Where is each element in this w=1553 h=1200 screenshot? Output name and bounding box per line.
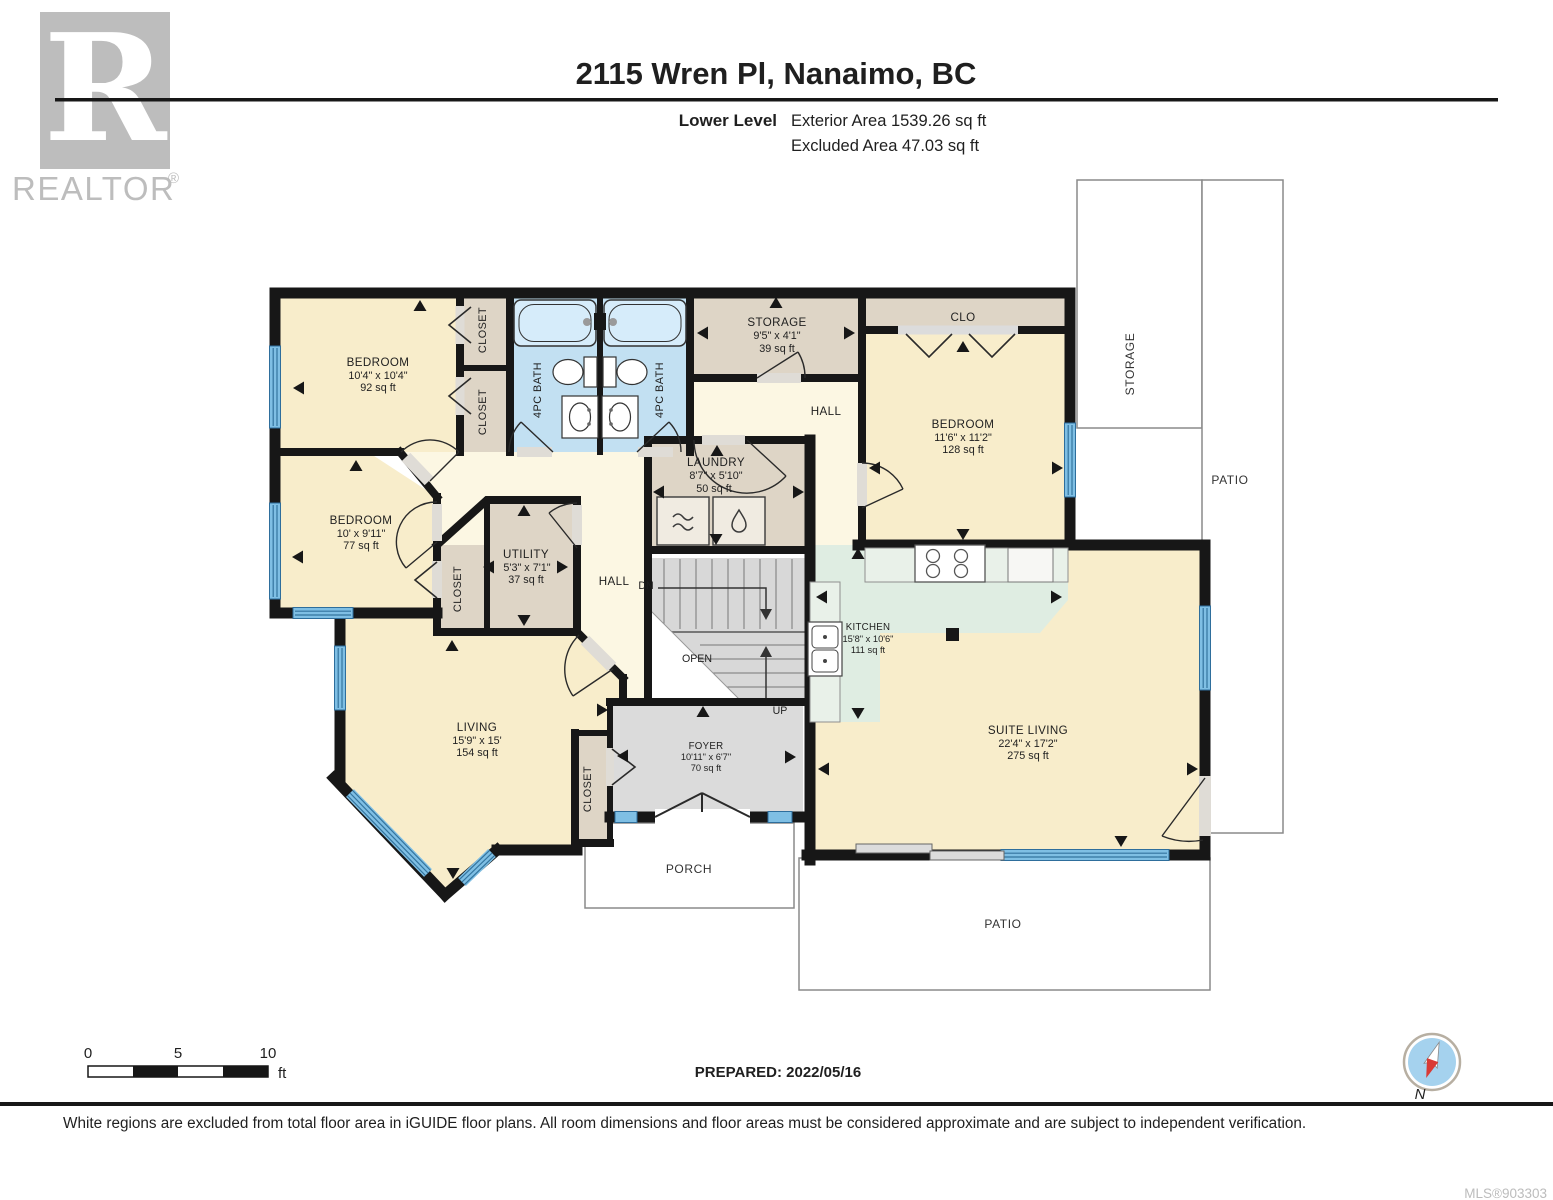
window	[768, 812, 792, 823]
room-dims: 10'11" x 6'7"	[681, 752, 731, 762]
room-dims: 8'7" x 5'10"	[689, 470, 742, 482]
toilet-icon	[603, 357, 647, 387]
room-name: KITCHEN	[846, 622, 891, 633]
room-name: BEDROOM	[347, 356, 410, 369]
bathtub-icon	[604, 300, 686, 346]
window	[270, 503, 281, 599]
room-area: 275 sq ft	[1007, 750, 1048, 762]
room-name: LAUNDRY	[687, 456, 745, 469]
realtor-logo-r: R	[44, 1, 168, 175]
utility-label: UTILITY 5'3" x 7'1" 37 sq ft	[503, 548, 551, 586]
compass: N	[1404, 1034, 1460, 1103]
room-area: 154 sq ft	[456, 747, 497, 759]
toilet-icon	[553, 357, 597, 387]
room-area: 37 sq ft	[508, 574, 543, 586]
realtor-logo-wordmark: REALTOR	[12, 170, 175, 207]
room-dims: 10'4" x 10'4"	[348, 370, 407, 382]
registered-trademark-icon: ®	[168, 170, 179, 187]
plumbing-wall	[594, 313, 606, 330]
exterior-area-value: Exterior Area 1539.26 sq ft	[791, 112, 987, 130]
page-title: 2115 Wren Pl, Nanaimo, BC	[576, 56, 977, 91]
up-label: UP	[773, 705, 788, 717]
window	[1200, 606, 1211, 690]
window	[270, 346, 281, 428]
north-label: N	[1415, 1086, 1426, 1103]
patio-right-area	[1202, 180, 1283, 833]
scale-tick-10: 10	[260, 1045, 277, 1062]
outdoor-storage-area	[1077, 180, 1202, 428]
disclaimer-text: White regions are excluded from total fl…	[63, 1115, 1306, 1132]
room-name: BEDROOM	[932, 418, 995, 431]
closet-label: CLOSET	[477, 389, 489, 435]
patio-label: PATIO	[1211, 473, 1248, 487]
hall-label: HALL	[599, 575, 630, 588]
room-area: 50 sq ft	[696, 483, 731, 495]
room-name: SUITE LIVING	[988, 724, 1068, 737]
room-area: 70 sq ft	[691, 763, 722, 773]
excluded-area-value: Excluded Area 47.03 sq ft	[791, 137, 979, 155]
washer-icon	[657, 497, 709, 545]
floor-plan-canvas: R REALTOR ® 2115 Wren Pl, Nanaimo, BC Lo…	[0, 0, 1553, 1200]
clo-label: CLO	[950, 311, 975, 324]
window	[1065, 423, 1076, 497]
closet-label: CLOSET	[477, 307, 489, 353]
room-dims: 15'8" x 10'6"	[843, 634, 894, 644]
room-dims: 22'4" x 17'2"	[998, 738, 1057, 750]
hall-label: HALL	[811, 405, 842, 418]
open-label: OPEN	[682, 653, 712, 665]
window	[1001, 850, 1169, 861]
prepared-date: PREPARED: 2022/05/16	[695, 1064, 861, 1081]
scale-unit: ft	[278, 1065, 287, 1082]
dn-label: DN	[638, 580, 653, 592]
room-name: STORAGE	[747, 316, 806, 329]
porch-label: PORCH	[666, 862, 712, 876]
room-area: 128 sq ft	[942, 444, 983, 456]
room-area: 39 sq ft	[759, 343, 794, 355]
living-label: LIVING 15'9" x 15' 154 sq ft	[452, 721, 501, 759]
vanity-sink-icon	[602, 396, 638, 438]
scale-tick-5: 5	[174, 1045, 182, 1062]
fridge-icon	[1008, 548, 1053, 582]
bathtub-icon	[514, 300, 596, 346]
room-dims: 11'6" x 11'2"	[934, 432, 992, 444]
room-area: 111 sq ft	[851, 645, 886, 655]
bath2-label: 4PC BATH	[654, 362, 666, 418]
kitchen-sink-icon	[808, 622, 842, 676]
window	[335, 646, 346, 710]
room-area: 77 sq ft	[343, 540, 378, 552]
room-name: UTILITY	[503, 548, 549, 561]
scale-tick-0: 0	[84, 1045, 92, 1062]
outdoor-storage-label: STORAGE	[1123, 333, 1137, 396]
header-divider	[55, 98, 1498, 102]
room-dims: 9'5" x 4'1"	[753, 330, 800, 342]
floor-plan-page: R REALTOR ® 2115 Wren Pl, Nanaimo, BC Lo…	[0, 0, 1553, 1200]
vanity-sink-icon	[562, 396, 598, 438]
kitchen-post	[946, 628, 959, 641]
window	[615, 812, 637, 823]
room-area: 92 sq ft	[360, 382, 395, 394]
room-dims: 15'9" x 15'	[452, 735, 501, 747]
room-name: FOYER	[689, 741, 724, 752]
bath1-label: 4PC BATH	[532, 362, 544, 418]
patio-label: PATIO	[984, 917, 1021, 931]
closet-label: CLOSET	[452, 566, 464, 612]
header: R REALTOR ® 2115 Wren Pl, Nanaimo, BC Lo…	[12, 1, 1498, 207]
stove-icon	[915, 545, 985, 582]
closet-label: CLOSET	[582, 766, 594, 812]
room-dims: 5'3" x 7'1"	[503, 562, 550, 574]
footer-divider	[0, 1102, 1553, 1106]
scale-bar: 0 5 10 ft	[84, 1045, 287, 1082]
room-name: LIVING	[457, 721, 497, 734]
mls-number: MLS®903303	[1464, 1186, 1547, 1200]
dryer-icon	[713, 497, 765, 545]
window	[293, 608, 353, 619]
footer: 0 5 10 ft PREPARED: 2022/05/16 N White r…	[0, 1034, 1553, 1200]
room-name: BEDROOM	[330, 514, 393, 527]
room-dims: 10' x 9'11"	[337, 528, 386, 540]
realtor-logo: R REALTOR ®	[12, 1, 179, 207]
level-label: Lower Level	[679, 111, 777, 130]
